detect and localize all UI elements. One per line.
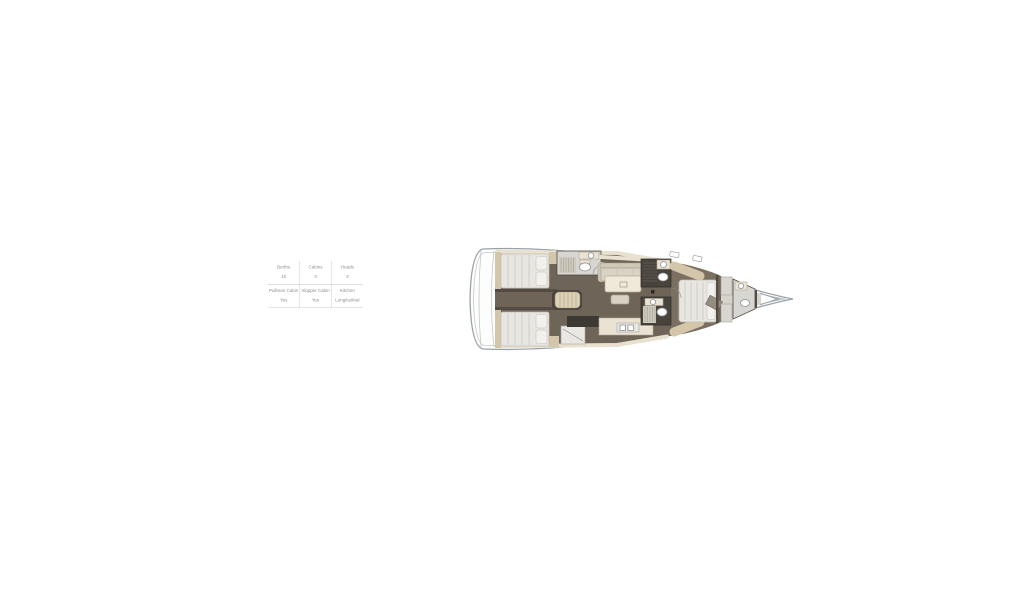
spec-skipper-value: Yes [301,298,330,303]
forward-bulkhead [716,275,719,323]
toilet-icon [657,308,667,316]
sink-icon [738,283,743,288]
spec-kitchen-label: Kitchen [333,288,362,293]
spec-table-row-2: Pullman Cabin Yes Skipper Cabin Yes Kitc… [268,285,363,308]
spec-cell-kitchen: Kitchen Longitudinal [331,285,363,308]
spec-cell-cabins: Cabins 3 [299,261,331,284]
spec-pullman-label: Pullman Cabin [269,288,298,293]
spec-cabins-value: 3 [301,274,330,279]
spec-heads-label: Heads [333,265,362,270]
spec-table: Berths 10 Cabins 3 Heads 3 Pullman Cabin… [268,261,363,308]
spec-cell-heads: Heads 3 [331,261,363,284]
sink-icon [661,262,667,268]
spec-cell-skipper-cabin: Skipper Cabin Yes [299,285,331,308]
mast-post [651,290,655,294]
spec-cabins-label: Cabins [301,265,330,270]
forward-head-port [641,297,671,325]
spec-skipper-label: Skipper Cabin [301,288,330,293]
spec-table-row-1: Berths 10 Cabins 3 Heads 3 [268,261,363,285]
salon-table [605,276,641,292]
spec-cell-berths: Berths 10 [268,261,299,284]
spec-kitchen-value: Longitudinal [333,298,362,303]
galley-sink-icon [628,325,634,331]
yacht-floorplan-diagram [467,246,799,354]
galley-stove [567,316,599,327]
sink-icon [650,299,655,304]
spec-pullman-value: Yes [269,298,298,303]
spec-cell-pullman-cabin: Pullman Cabin Yes [268,285,299,308]
deck-hatches [670,251,703,262]
spec-berths-value: 10 [269,274,298,279]
spec-berths-label: Berths [269,265,298,270]
salon-bench [611,295,629,304]
companionway-stairs [552,290,582,310]
sink-icon [588,253,594,259]
toilet-icon [658,273,668,281]
toilet-icon [580,263,591,271]
toilet-icon [741,300,750,307]
galley-sink-icon [620,325,626,331]
forward-head-starboard [641,259,671,287]
aft-head [557,251,601,275]
spec-heads-value: 3 [333,274,362,279]
